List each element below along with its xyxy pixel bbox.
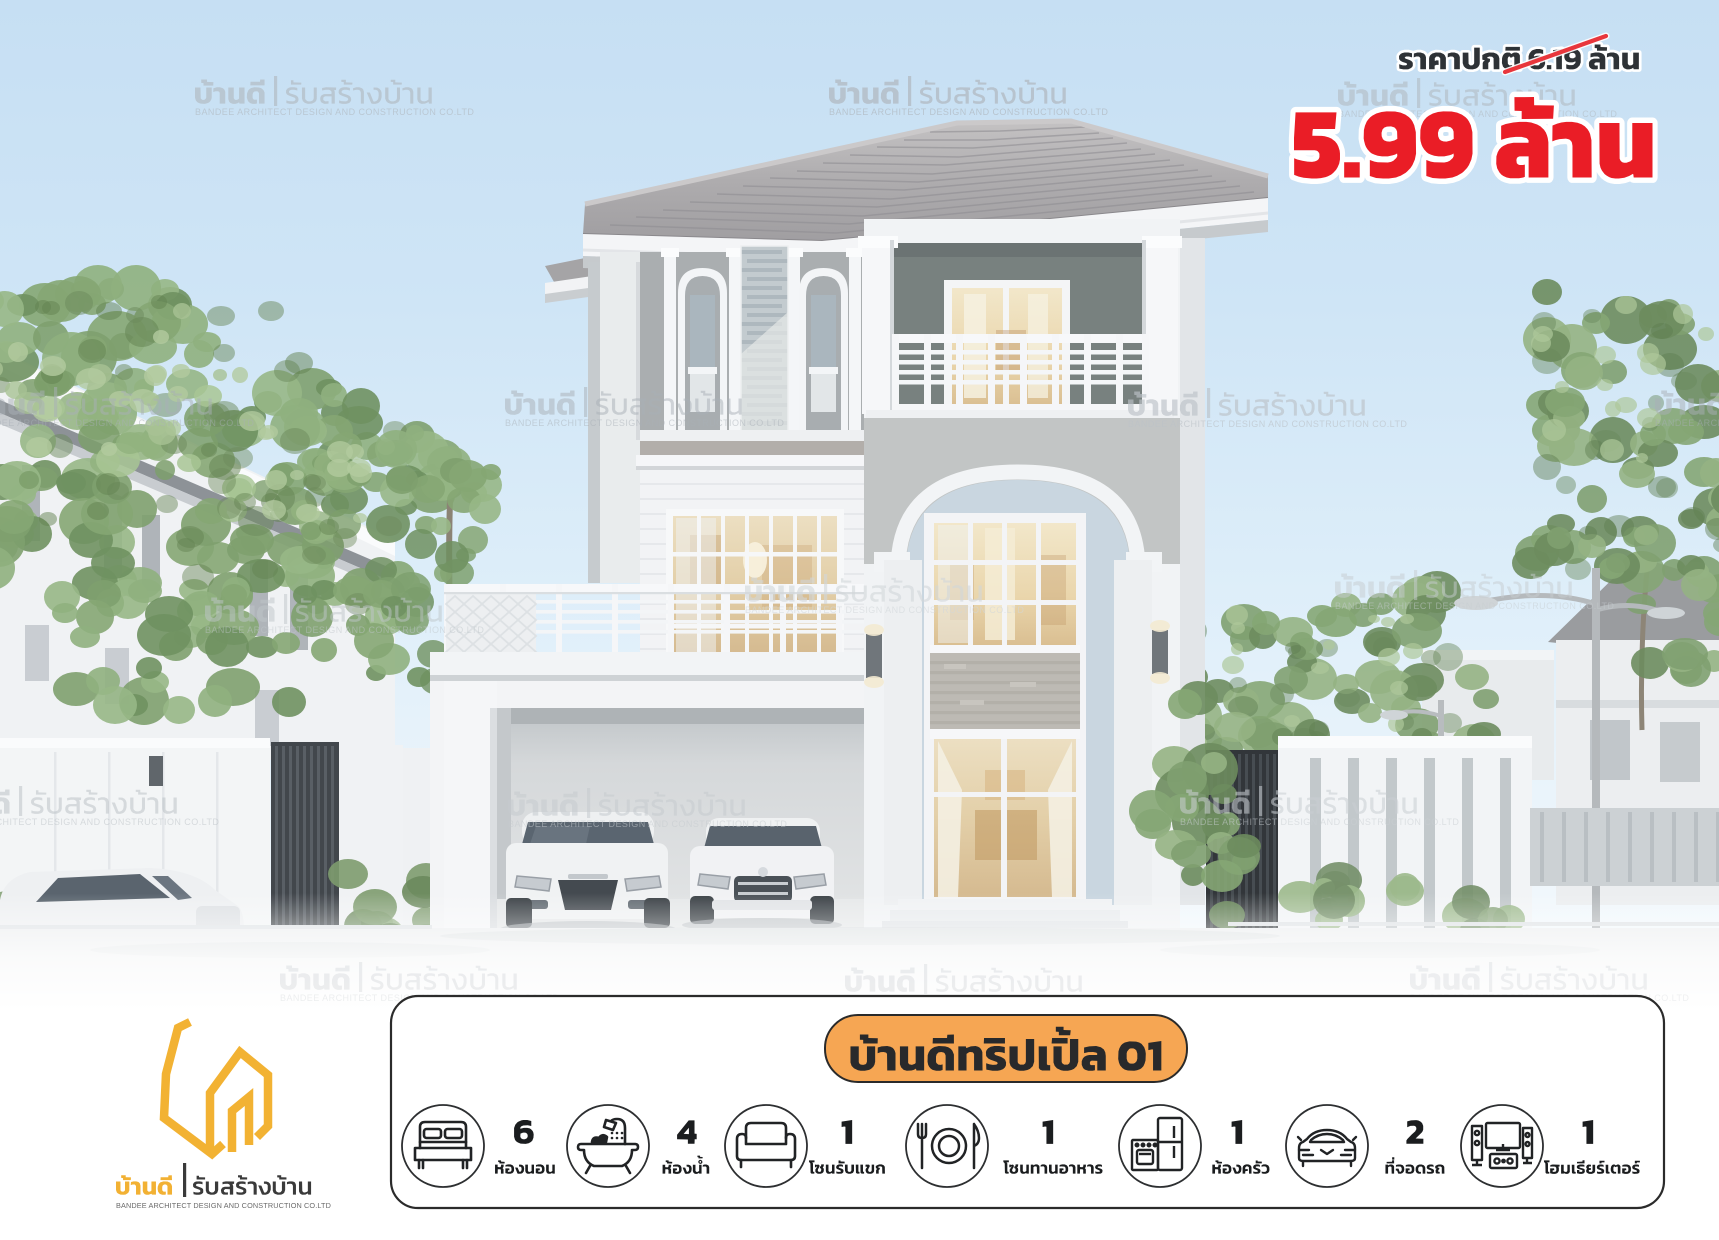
svg-text:BANDEE ARCHITECT DESIGN AND CO: BANDEE ARCHITECT DESIGN AND CONSTRUCTION…	[116, 1201, 331, 1210]
